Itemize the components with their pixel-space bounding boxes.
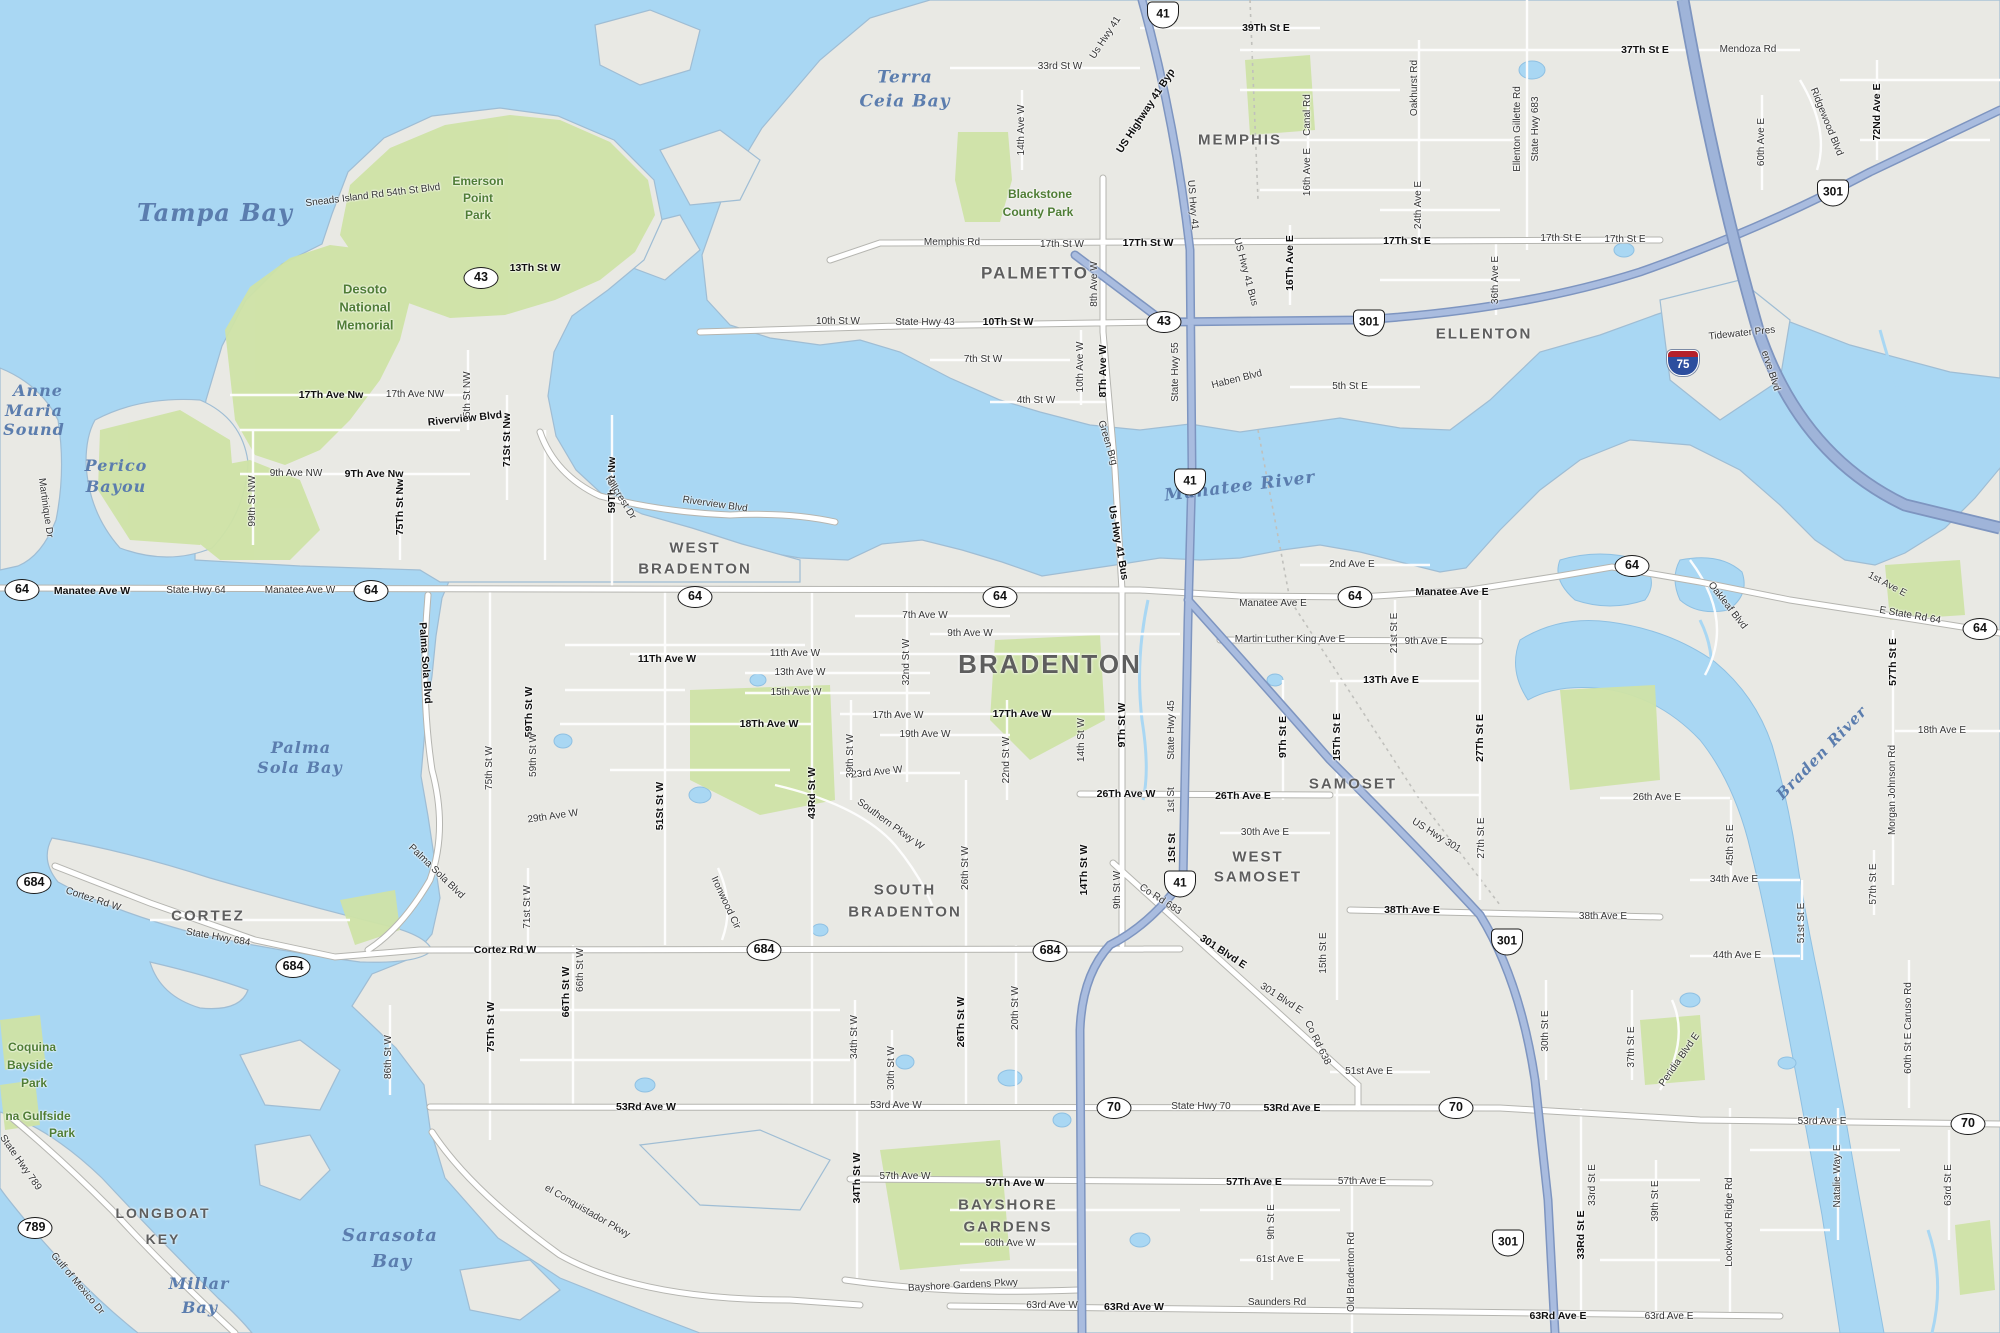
road-label: 44th Ave E [1713,951,1761,961]
road-label: Memphis Rd [924,238,980,248]
road-label: 9th St W [1113,871,1123,909]
road-label: 9th St E [1267,1204,1277,1240]
city-label: BRADENTON [958,651,1142,677]
road-label: 71st St W [523,885,533,928]
road-label: 36th Ave E [1491,256,1501,304]
road-label: 21st St E [1390,613,1400,654]
road-label: 14th Ave W [1017,105,1027,156]
road-label: State Hwy 45 [1167,700,1177,759]
road-label-bold: 13Th Ave E [1363,675,1419,686]
city-label: SAMOSET [1214,870,1302,885]
road-label-bold: 15Th St E [1332,713,1343,761]
road-label-bold: 57Th St E [1888,638,1899,686]
road-label: Mendoza Rd [1720,45,1777,55]
road-label: 34th St W [850,1015,860,1059]
road-label-bold: 10Th St W [983,317,1034,328]
water-label: Maria [5,403,63,419]
road-label-bold: 14Th St W [1079,845,1090,896]
city-label: SOUTH [874,883,937,898]
city-label: GARDENS [963,1220,1052,1235]
road-label: State Hwy 64 [166,586,225,596]
road-label: Saunders Rd [1248,1298,1306,1308]
city-label: LONGBOAT [115,1206,210,1220]
road-label: 9th Ave NW [270,469,323,479]
road-label: 5th St E [1332,382,1368,392]
road-label: 17th St W [1040,240,1084,250]
road-label: 34th Ave E [1710,875,1758,885]
state-route-shield: 64 [678,586,713,608]
road-label: 10th St W [816,317,860,327]
water-label: Sarasota [342,1227,438,1245]
park-label: Desoto [343,283,387,296]
road-label: 86th St W [384,1035,394,1079]
road-label-bold: 1St St [1167,833,1178,863]
road-label-bold: 13Th St W [510,263,561,274]
road-label-bold: 26Th St W [956,997,967,1048]
road-label-bold: 51St St W [655,782,666,830]
park-label: County Park [1003,206,1074,218]
road-label-bold: 26Th Ave E [1215,791,1271,802]
road-label: 63rd Ave E [1645,1312,1694,1322]
city-label: WEST [669,541,720,556]
road-label: State Hwy 70 [1171,1102,1230,1112]
road-label-bold: 39Th St E [1242,23,1290,34]
road-label: 1st St [1167,787,1177,813]
state-route-shield: 684 [1033,940,1068,962]
road-label: 13th Ave W [775,668,826,678]
road-label: 7th Ave W [902,611,947,621]
road-label-bold: 53Rd Ave W [616,1102,676,1113]
park-label: Memorial [336,319,393,332]
road-label: Martin Luther King Ave E [1235,635,1345,645]
road-label-bold: 75Th St Nw [395,479,406,536]
water-label: Perico [85,458,148,474]
road-label: 53rd Ave W [870,1101,922,1111]
road-label: State Hwy 55 [1171,342,1181,401]
road-label-bold: Manatee Ave E [1415,587,1488,598]
road-label: 30th St W [887,1046,897,1090]
city-label: BRADENTON [848,905,962,920]
state-route-shield: 64 [983,586,1018,608]
state-route-shield: 64 [5,579,40,601]
state-route-shield: 64 [1338,586,1373,608]
road-label: 38th Ave E [1579,912,1627,922]
park-label: Blackstone [1008,188,1072,200]
water-label: Tampa Bay [137,201,293,225]
road-label-bold: 17Th Ave Nw [299,390,364,401]
road-label: 60th St E Caruso Rd [1904,982,1914,1074]
road-label-bold: 43Rd St W [807,767,818,819]
state-route-shield: 64 [354,580,389,602]
road-label: 33rd St W [1038,62,1082,72]
road-label: 19th Ave W [900,730,951,740]
road-label: Lockwood Ridge Rd [1725,1177,1735,1267]
road-label-bold: 37Th St E [1621,45,1669,56]
road-label: 32nd St W [902,639,912,686]
road-label-bold: 33Rd St E [1576,1210,1587,1259]
road-label: State Hwy 43 [895,318,954,328]
road-label: 9th Ave E [1405,637,1448,647]
state-route-shield: 70 [1951,1113,1986,1135]
state-route-shield: 789 [18,1217,53,1239]
park-label: na Gulfside [5,1110,70,1122]
city-label: WEST [1232,850,1283,865]
state-route-shield: 684 [747,939,782,961]
road-label: 4th St W [1017,396,1055,406]
city-label: PALMETTO [981,265,1089,282]
road-label-bold: 27Th St E [1475,714,1486,762]
city-label: KEY [146,1232,181,1246]
city-label: BRADENTON [638,562,752,577]
road-label: 45th St E [1726,824,1736,865]
road-label-bold: 66Th St W [561,967,572,1018]
road-label: 22nd St W [1002,737,1012,784]
road-label: Morgan Johnson Rd [1888,745,1898,835]
road-label: Manatee Ave W [265,586,335,596]
water-label: Bayou [86,479,147,495]
road-label: 37th St E [1627,1026,1637,1067]
city-label: MEMPHIS [1198,133,1282,148]
road-label: 51st Ave E [1345,1067,1393,1077]
road-label: 39th St E [1651,1180,1661,1221]
road-label: 10th Ave W [1076,342,1086,393]
road-label-bold: 9Th St W [1117,703,1128,748]
road-label: 61st Ave E [1256,1255,1304,1265]
road-label: 17th St E [1540,234,1581,244]
road-label: Canal Rd [1303,94,1313,136]
road-label: 60th Ave E [1757,118,1767,166]
water-label: Bay [372,1253,412,1271]
road-label-bold: 72Nd Ave E [1872,84,1883,141]
map-canvas[interactable]: Tampa BayTerraCeia BayAnneMariaSoundPeri… [0,0,2000,1333]
state-route-shield: 43 [1147,311,1182,333]
water-label: Sound [3,422,65,438]
water-label: Anne [13,383,63,399]
road-label-bold: 11Th Ave W [638,654,696,665]
road-label: 66th St W [576,948,586,992]
state-route-shield: 684 [276,956,311,978]
road-label-bold: 38Th Ave E [1384,905,1440,916]
water-label: Bay [182,1300,218,1316]
road-label-bold: 9Th St E [1278,716,1289,758]
road-label-bold: 75Th St W [486,1002,497,1053]
road-label-bold: 71St St Nw [502,413,513,467]
road-label-bold: 17Th Ave W [993,709,1052,720]
road-label-bold: 57Th Ave E [1226,1177,1282,1188]
city-label: SAMOSET [1309,777,1397,792]
state-route-shield: 43 [464,267,499,289]
park-label: Coquina [8,1041,56,1053]
road-label: 26th Ave E [1633,793,1681,803]
road-label-bold: 17Th St W [1123,238,1174,249]
road-label: 9th Ave W [947,629,992,639]
road-label: 27th St E [1477,817,1487,858]
road-label: State Hwy 683 [1531,96,1541,161]
state-route-shield: 64 [1963,618,1998,640]
road-label-bold: 18Th Ave W [740,719,799,730]
state-route-shield: 70 [1439,1097,1474,1119]
city-label: BAYSHORE [958,1198,1058,1213]
road-label-bold: 57Th Ave W [986,1178,1045,1189]
road-label: 17th Ave NW [386,390,444,400]
park-label: Park [49,1127,75,1139]
road-label-bold: 63Rd Ave E [1530,1311,1587,1322]
road-label: Old Bradenton Rd [1347,1232,1357,1312]
road-label: 20th St W [1011,986,1021,1030]
water-label: Terra [877,70,932,87]
water-label: Sola Bay [257,760,342,776]
road-label: 39th St W [846,734,856,778]
road-label: Natalie Way E [1833,1145,1843,1208]
road-label: 30th Ave E [1241,828,1289,838]
park-label: National [339,301,390,314]
park-label: Park [465,209,491,221]
road-label: 51st St E [1797,903,1807,944]
park-label: Bayside [7,1059,53,1071]
road-label: 15th Ave W [771,688,822,698]
water-label: Millar [169,1276,230,1292]
road-label: 15th St E [1319,932,1329,973]
road-label: 17th St E [1604,235,1645,245]
park-label: Emerson [452,175,503,187]
road-label-bold: 34Th St W [852,1153,863,1204]
state-route-shield: 70 [1097,1097,1132,1119]
road-label: 63rd St E [1944,1164,1954,1206]
road-label: 14th St W [1077,718,1087,762]
road-label: Manatee Ave E [1239,599,1307,609]
road-label: 99th St NW [248,475,258,526]
road-label: 57th St E [1869,863,1879,904]
road-label-bold: 26Th Ave W [1097,789,1156,800]
road-label: 17th Ave W [873,711,924,721]
park-label: Point [463,192,493,204]
road-label: 30th St E [1541,1010,1551,1051]
road-label-bold: 63Rd Ave W [1104,1302,1164,1313]
road-label-bold: 59Th St W [524,687,535,738]
road-label: 2nd Ave E [1329,560,1374,570]
city-label: ELLENTON [1436,327,1533,342]
road-label: 57th Ave E [1338,1177,1386,1187]
road-label-bold: 8Th Ave W [1098,345,1109,398]
road-label: 11th Ave W [770,649,820,659]
road-label: Ellenton Gillette Rd [1513,86,1523,172]
road-label: 7th St W [964,355,1002,365]
road-label: 59th St W [529,733,539,777]
state-route-shield: 64 [1615,555,1650,577]
road-label: 8th Ave W [1090,261,1100,306]
road-label: 18th Ave E [1918,726,1966,736]
state-route-shield: 684 [17,872,52,894]
road-label: Oakhurst Rd [1410,60,1420,116]
road-label: 60th Ave W [985,1239,1036,1249]
road-label: 57th Ave W [880,1172,931,1182]
road-label: 75th St W [485,746,495,790]
road-label-bold: 17Th St E [1383,236,1431,247]
road-label-bold: Cortez Rd W [474,945,536,956]
water-label: Ceia Bay [860,94,951,111]
road-label: 53rd Ave E [1798,1117,1847,1127]
road-label-bold: Manatee Ave W [54,586,130,597]
city-label: CORTEZ [171,909,245,924]
road-label: 16th Ave E [1303,148,1313,196]
water-label: Palma [271,740,331,756]
road-label-bold: 16Th Ave E [1285,235,1296,291]
road-label-bold: 53Rd Ave E [1264,1103,1321,1114]
road-label: 24th Ave E [1414,181,1424,229]
road-label: 33rd St E [1588,1164,1598,1206]
road-label: 63rd Ave W [1026,1301,1078,1311]
park-label: Park [21,1077,47,1089]
road-label: 26th St W [961,846,971,890]
